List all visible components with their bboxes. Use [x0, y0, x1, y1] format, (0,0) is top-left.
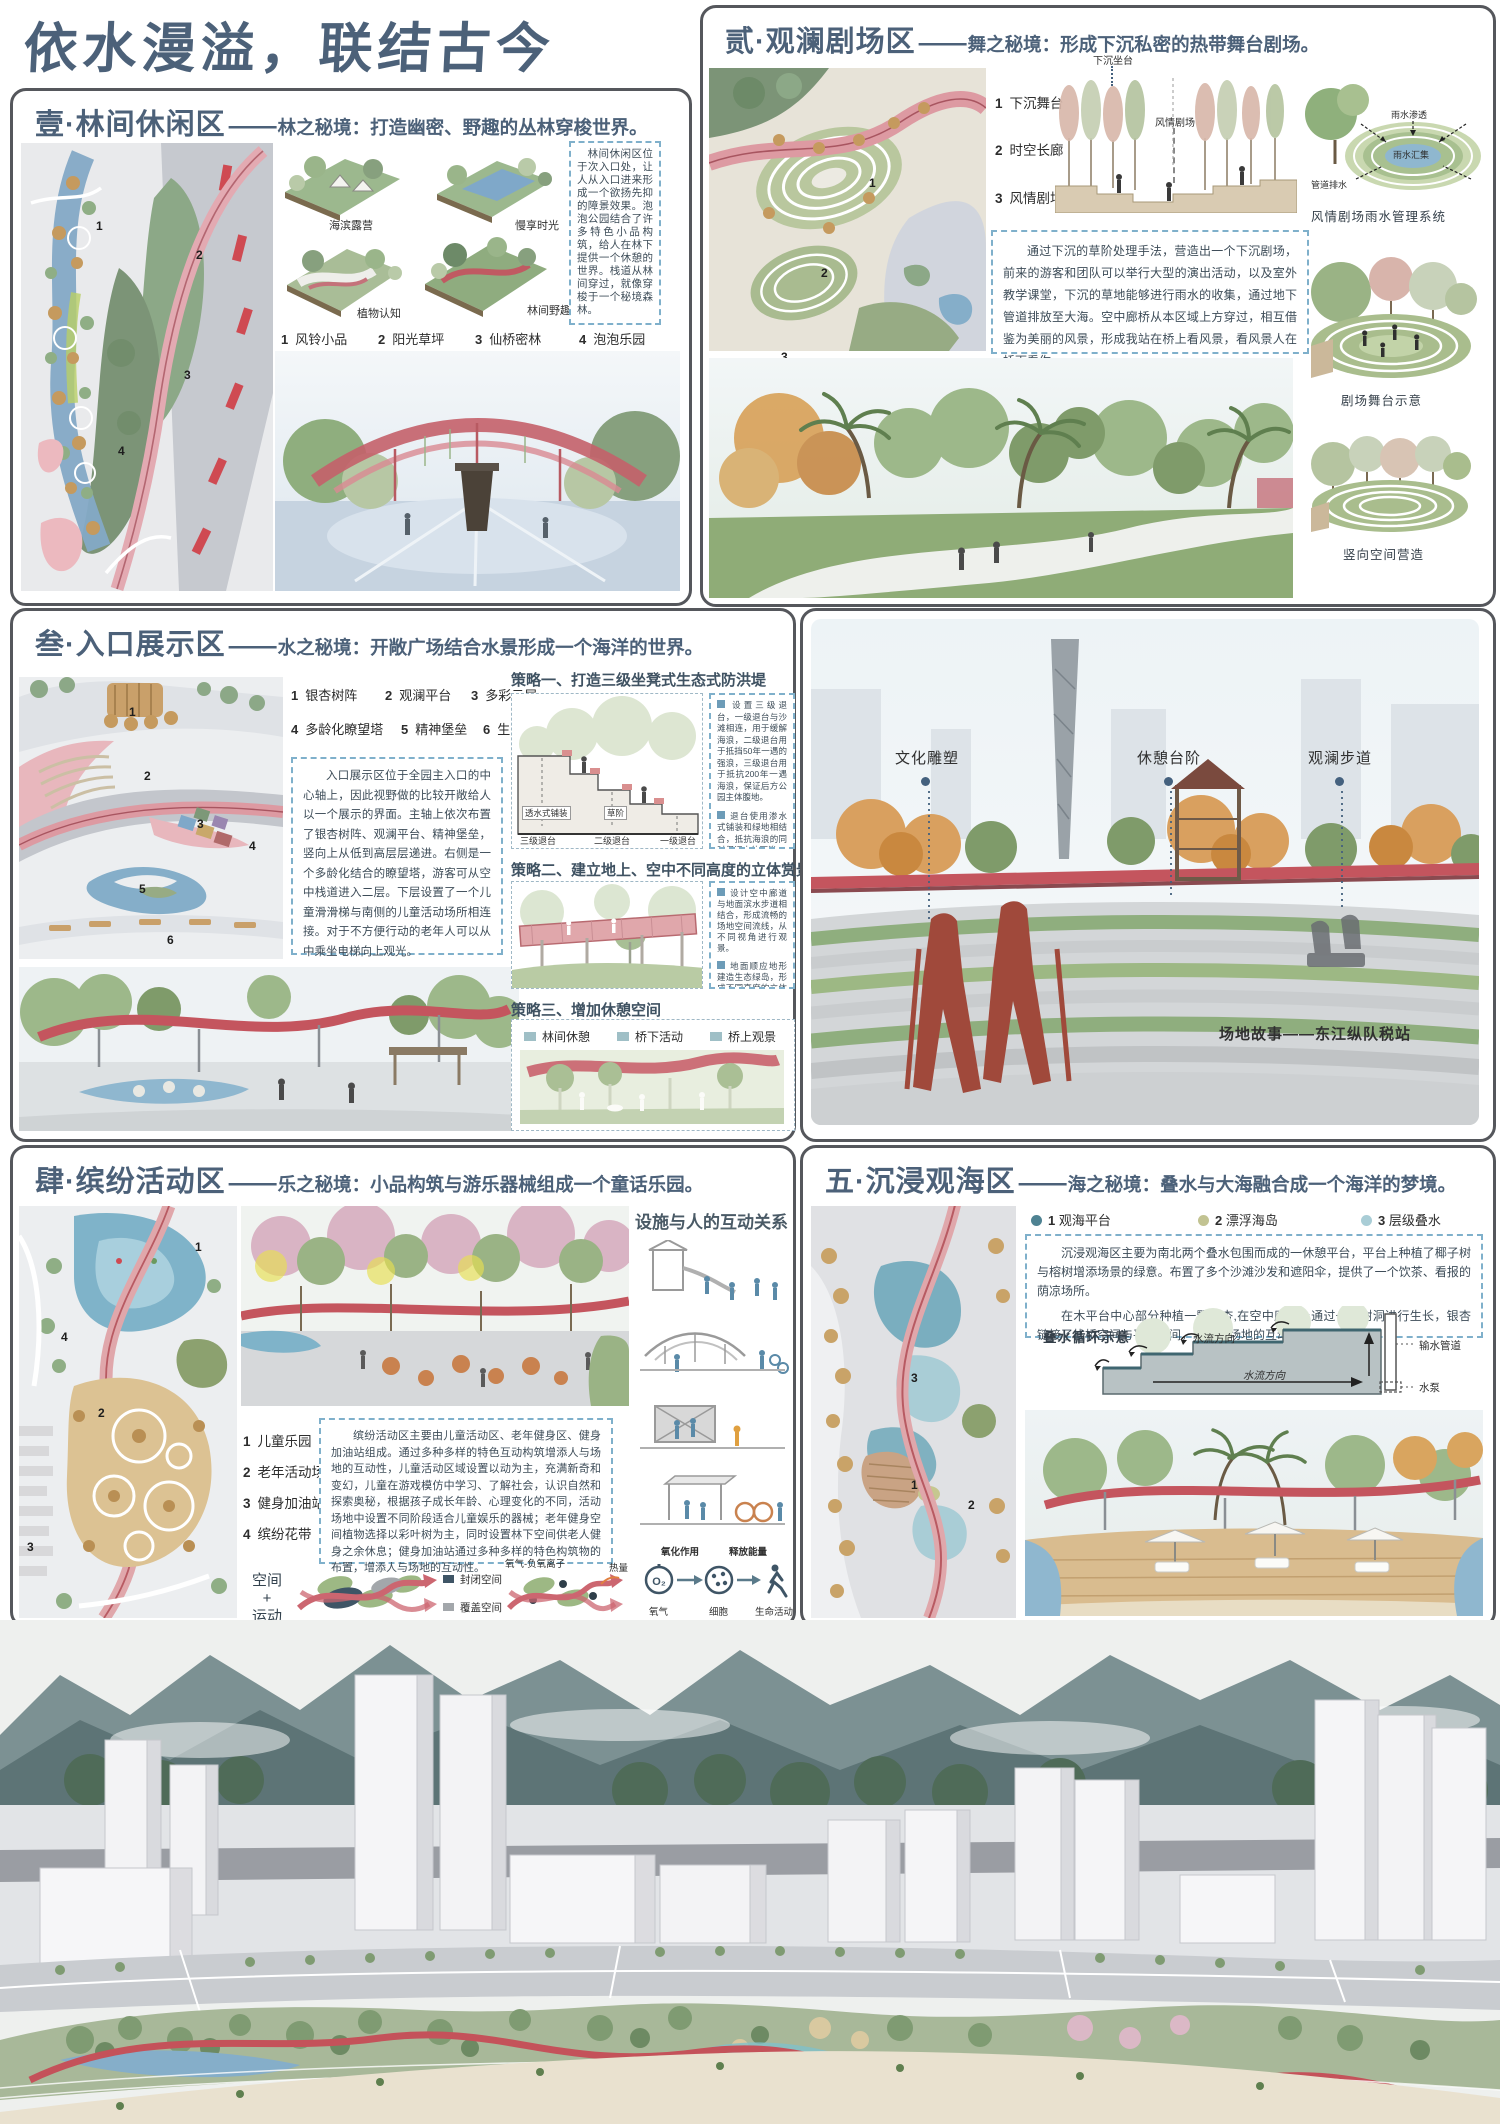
section1-title: 壹·林间休闲区 — [35, 101, 226, 143]
rain-diagram-caption: 风情剧场雨水管理系统 — [1311, 206, 1446, 225]
legend-square-icon — [617, 1032, 629, 1041]
plan-number: 1 — [911, 1478, 918, 1492]
legend-dot-icon — [1031, 1215, 1042, 1226]
rain-label: 管道排水 — [1309, 178, 1349, 191]
masterplan-forest-illustration — [21, 143, 273, 591]
plan-number: 1 — [96, 219, 103, 233]
legend-square-icon — [524, 1032, 536, 1041]
plan-number: 4 — [61, 1330, 68, 1344]
plan-number: 3 — [197, 817, 204, 831]
photo-caption: 场地故事——东江纵队税站 — [1219, 1023, 1411, 1044]
section3-plan: 1 2 3 4 5 6 — [19, 677, 283, 959]
legend-square-icon — [443, 1575, 454, 1583]
axon-camping — [275, 147, 405, 221]
section3-dash: —— — [229, 632, 275, 661]
section1-description: 林间休闲区位于次入口处，让人从入口进来形成一个欲扬先抑的障景效果。泡泡公园结合了… — [569, 141, 661, 325]
bullet-square-icon — [717, 811, 725, 819]
section2-rendering — [709, 358, 1293, 598]
strategy3-box: 林间休憩 桥下活动 桥上观景 — [511, 1019, 795, 1131]
space-motion-label: 空间 + 运动 — [245, 1572, 289, 1626]
plan-number: 4 — [249, 839, 256, 853]
strategy3-image — [520, 1050, 784, 1124]
section2-description: 通过下沉的草阶处理手法，营造出一个下沉剧场，前来的游客和团队可以举行大型的演出活… — [991, 230, 1309, 354]
plus-label: + — [245, 1590, 289, 1608]
section1-dash: —— — [229, 112, 275, 141]
interaction-sketch — [635, 1316, 791, 1382]
panel-forest-leisure: 壹·林间休闲区 —— 林之秘境：打造幽密、野趣的丛林穿梭世界。 — [10, 88, 692, 606]
legend-item: 1下沉舞台 — [995, 92, 1064, 112]
plan-number: 2 — [968, 1498, 975, 1512]
section5-dash: —— — [1019, 1169, 1065, 1198]
section4-rendering — [241, 1206, 629, 1406]
interaction-sketch — [635, 1240, 791, 1306]
strategy2-notes: 设计空中廊道与地面滨水步道相结合，形成流畅的场地空间流线，从不同视角进行观景。 … — [709, 881, 795, 989]
step-label: 二级退台 — [594, 834, 630, 847]
entrance-photo: 文化雕塑 休憩台阶 观澜步道 场地故事——东江纵队税站 — [811, 619, 1479, 1125]
section1-masterplan: 1 2 3 4 — [21, 143, 273, 591]
flow-label-heat: 热量 — [609, 1560, 628, 1574]
rain-label: 雨水汇集 — [1393, 148, 1429, 161]
rain-management-diagram: 雨水渗透 雨水汇集 管道排水 — [1301, 64, 1489, 202]
poster-title: 依水漫溢，联结古今 — [22, 4, 557, 83]
legend-item: 4泡泡乐园 — [579, 329, 645, 348]
section5-plan: 3 1 2 — [811, 1206, 1016, 1618]
section4-header: 肆·缤纷活动区 —— 乐之秘境：小品构筑与游乐器械组成一个童话乐园。 — [35, 1158, 703, 1200]
section-label-sunken: 下沉坐台 — [1093, 52, 1133, 67]
vertical-diagram-caption: 竖向空间营造 — [1343, 544, 1424, 563]
strategy3-legend-item: 桥下活动 — [617, 1028, 683, 1045]
legend-item: 4缤纷花带 — [243, 1523, 312, 1543]
plan-number: 1 — [869, 176, 876, 190]
legend-item: 1风铃小品 — [281, 329, 347, 348]
strategy1-image: 透水式铺装 草阶 三级退台 二级退台 一级退台 — [511, 693, 703, 849]
section2-title: 贰·观澜剧场区 — [725, 18, 916, 60]
ocean-legend-item: 1 观海平台 — [1031, 1210, 1111, 1229]
bullet-square-icon — [717, 700, 725, 708]
legend-item: 2阳光草坪 — [378, 329, 444, 348]
bullet-square-icon — [717, 888, 725, 896]
legend-square-icon — [710, 1032, 722, 1041]
legend-item: 3健身加油站 — [243, 1492, 325, 1512]
plan-number: 3 — [184, 368, 191, 382]
step-label: 一级退台 — [660, 834, 696, 847]
aerial-masterplan-rendering — [0, 1620, 1500, 2124]
design-poster: 依水漫溢，联结古今 壹·林间休闲区 —— 林之秘境：打造幽密、野趣的丛林穿梭世界… — [0, 0, 1500, 2124]
oxygen-chain-diagram: O₂ — [641, 1560, 791, 1602]
plan-number: 4 — [118, 444, 125, 458]
axon-label-plants: 植物认知 — [357, 305, 401, 321]
panel-theater: 贰·观澜剧场区 —— 舞之秘境：形成下沉私密的热带舞台剧场。 — [700, 5, 1496, 607]
section5-subtitle: 海之秘境：叠水与大海融合成一个海洋的梦境。 — [1068, 1171, 1457, 1197]
strategy2-image — [511, 881, 703, 989]
section5-rendering — [1025, 1410, 1483, 1616]
photo-label-walk: 观澜步道 — [1308, 747, 1372, 768]
photo-label-steps: 休憩台阶 — [1137, 747, 1201, 768]
legend-item: 1儿童乐园 — [243, 1430, 312, 1450]
panel-entrance: 叁·入口展示区 —— 水之秘境：开敞广场结合水景形成一个海洋的世界。 — [10, 608, 796, 1142]
section2-dash: —— — [919, 29, 965, 58]
interaction-sketch — [635, 1468, 791, 1534]
section2-header: 贰·观澜剧场区 —— 舞之秘境：形成下沉私密的热带舞台剧场。 — [725, 18, 1319, 60]
oxygen-bottom-label: 细胞 — [709, 1604, 728, 1618]
plan-number: 1 — [195, 1240, 202, 1254]
legend-item: 3风情剧场 — [995, 187, 1064, 207]
legend-item: 1银杏树阵 — [291, 685, 357, 704]
stage-diagram-caption: 剧场舞台示意 — [1341, 390, 1422, 409]
axon-label-camping: 海滨露营 — [329, 217, 373, 233]
strategy3-title: 策略三、增加休憩空间 — [511, 999, 661, 1020]
rain-label: 雨水渗透 — [1389, 108, 1429, 121]
flow-direction-label: 水流方向 — [1193, 1331, 1235, 1346]
section3-title: 叁·入口展示区 — [35, 621, 226, 663]
section1-subtitle: 林之秘境：打造幽密、野趣的丛林穿梭世界。 — [278, 114, 648, 140]
section3-description: 入口展示区位于全园主入口的中心轴上，因此视野做的比较开敞给人以一个展示的界面。主… — [291, 757, 503, 955]
legend-item: 5精神堡垒 — [401, 719, 467, 738]
plan-number: 2 — [196, 248, 203, 262]
vertical-space-diagram — [1305, 426, 1475, 534]
section5-header: 五·沉浸观海区 —— 海之秘境：叠水与大海融合成一个海洋的梦境。 — [825, 1158, 1456, 1200]
section2-plan: 1 2 3 — [709, 68, 986, 351]
legend-dot-icon — [1361, 1215, 1372, 1226]
label-dot-icon — [1164, 777, 1173, 786]
oxygen-top-label: 氧化作用 — [661, 1544, 699, 1558]
section2-subtitle: 舞之秘境：形成下沉私密的热带舞台剧场。 — [968, 31, 1320, 57]
ocean-legend-item: 2 漂浮海岛 — [1198, 1210, 1278, 1229]
strategy1-title: 策略一、打造三级坐凳式生态式防洪堤 — [511, 669, 766, 690]
section3-header: 叁·入口展示区 —— 水之秘境：开敞广场结合水景形成一个海洋的世界。 — [35, 621, 703, 663]
space-label: 空间 — [245, 1572, 289, 1590]
oxygen-top-label: 释放能量 — [729, 1544, 767, 1558]
plan-number: 6 — [167, 933, 174, 947]
legend-item: 2时空长廊 — [995, 139, 1064, 159]
pump-label: 水泵 — [1419, 1380, 1440, 1395]
legend-item: 2老年活动场 — [243, 1461, 325, 1481]
legend-square-icon — [443, 1603, 454, 1611]
strategy3-legend-item: 桥上观景 — [710, 1028, 776, 1045]
section4-description: 缤纷活动区主要由儿童活动区、老年健身区、健身加油站组成。通过多种多样的特色互动构… — [319, 1418, 613, 1564]
oxygen-icon-text: O₂ — [652, 1576, 666, 1588]
interaction-title: 设施与人的互动关系 — [635, 1208, 788, 1233]
section3-subtitle: 水之秘境：开敞广场结合水景形成一个海洋的世界。 — [278, 634, 704, 660]
space-legend-item: 覆盖空间 — [443, 1600, 502, 1615]
plan-number: 1 — [129, 705, 136, 719]
strategy3-legend-item: 林间休憩 — [524, 1028, 590, 1045]
section4-title: 肆·缤纷活动区 — [35, 1158, 226, 1200]
panel-entrance-photo: 文化雕塑 休憩台阶 观澜步道 场地故事——东江纵队税站 — [800, 608, 1496, 1142]
section1-header: 壹·林间休闲区 —— 林之秘境：打造幽密、野趣的丛林穿梭世界。 — [35, 101, 648, 143]
label-dot-icon — [921, 777, 930, 786]
plan-number: 5 — [139, 882, 146, 896]
stage-diagram — [1303, 244, 1479, 384]
legend-item: 2观澜平台 — [385, 685, 451, 704]
label-dot-icon — [1335, 777, 1344, 786]
flow-direction-label: 水流方向 — [1243, 1368, 1285, 1383]
cascade-diagram — [1093, 1306, 1413, 1406]
plan-number: 2 — [821, 266, 828, 280]
space-legend-item: 封闭空间 — [443, 1572, 502, 1587]
step-label: 三级退台 — [520, 834, 556, 847]
flow-label-oxygen: 氧气-负氧离子 — [505, 1556, 565, 1570]
section3-rendering — [19, 967, 519, 1131]
section5-title: 五·沉浸观海区 — [825, 1158, 1016, 1200]
axon-label-forest-fun: 林间野趣 — [527, 302, 571, 318]
bullet-square-icon — [717, 961, 725, 969]
photo-label-sculpture: 文化雕塑 — [895, 747, 959, 768]
pipe-label: 输水管道 — [1419, 1338, 1461, 1353]
oxygen-bottom-label: 氧气 — [649, 1604, 668, 1618]
section2-section-sketch — [1055, 68, 1297, 213]
legend-item: 3仙桥密林 — [475, 329, 541, 348]
section4-plan: 1 4 2 3 — [19, 1206, 237, 1618]
space-flow-diagram-1 — [295, 1568, 437, 1620]
section1-rendering — [275, 351, 680, 591]
oxygen-bottom-label: 生命活动 — [755, 1604, 793, 1618]
plan-number: 2 — [144, 769, 151, 783]
ocean-legend-item: 3 层级叠水 — [1361, 1210, 1441, 1229]
strategy1-small-label: 草阶 — [604, 806, 627, 820]
axon-leisure — [427, 149, 557, 223]
section4-subtitle: 乐之秘境：小品构筑与游乐器械组成一个童话乐园。 — [278, 1171, 704, 1197]
section4-dash: —— — [229, 1169, 275, 1198]
legend-item: 4多龄化瞭望塔 — [291, 719, 383, 738]
plan-number: 3 — [911, 1371, 918, 1385]
space-flow-diagram-2 — [505, 1570, 623, 1620]
interaction-sketch — [635, 1392, 791, 1458]
legend-dot-icon — [1198, 1215, 1209, 1226]
panel-activity: 肆·缤纷活动区 —— 乐之秘境：小品构筑与游乐器械组成一个童话乐园。 — [10, 1145, 796, 1628]
plan-number: 2 — [98, 1406, 105, 1420]
plan-number: 3 — [27, 1540, 34, 1554]
strategy1-small-label: 透水式铺装 — [522, 806, 571, 820]
strategy1-notes: 设置三级退台，一级退台与沙滩相连，用于缓解海浪，二级退台用于抵挡50年一遇的强浪… — [709, 693, 795, 849]
panel-ocean: 五·沉浸观海区 —— 海之秘境：叠水与大海融合成一个海洋的梦境。 3 — [800, 1145, 1496, 1628]
